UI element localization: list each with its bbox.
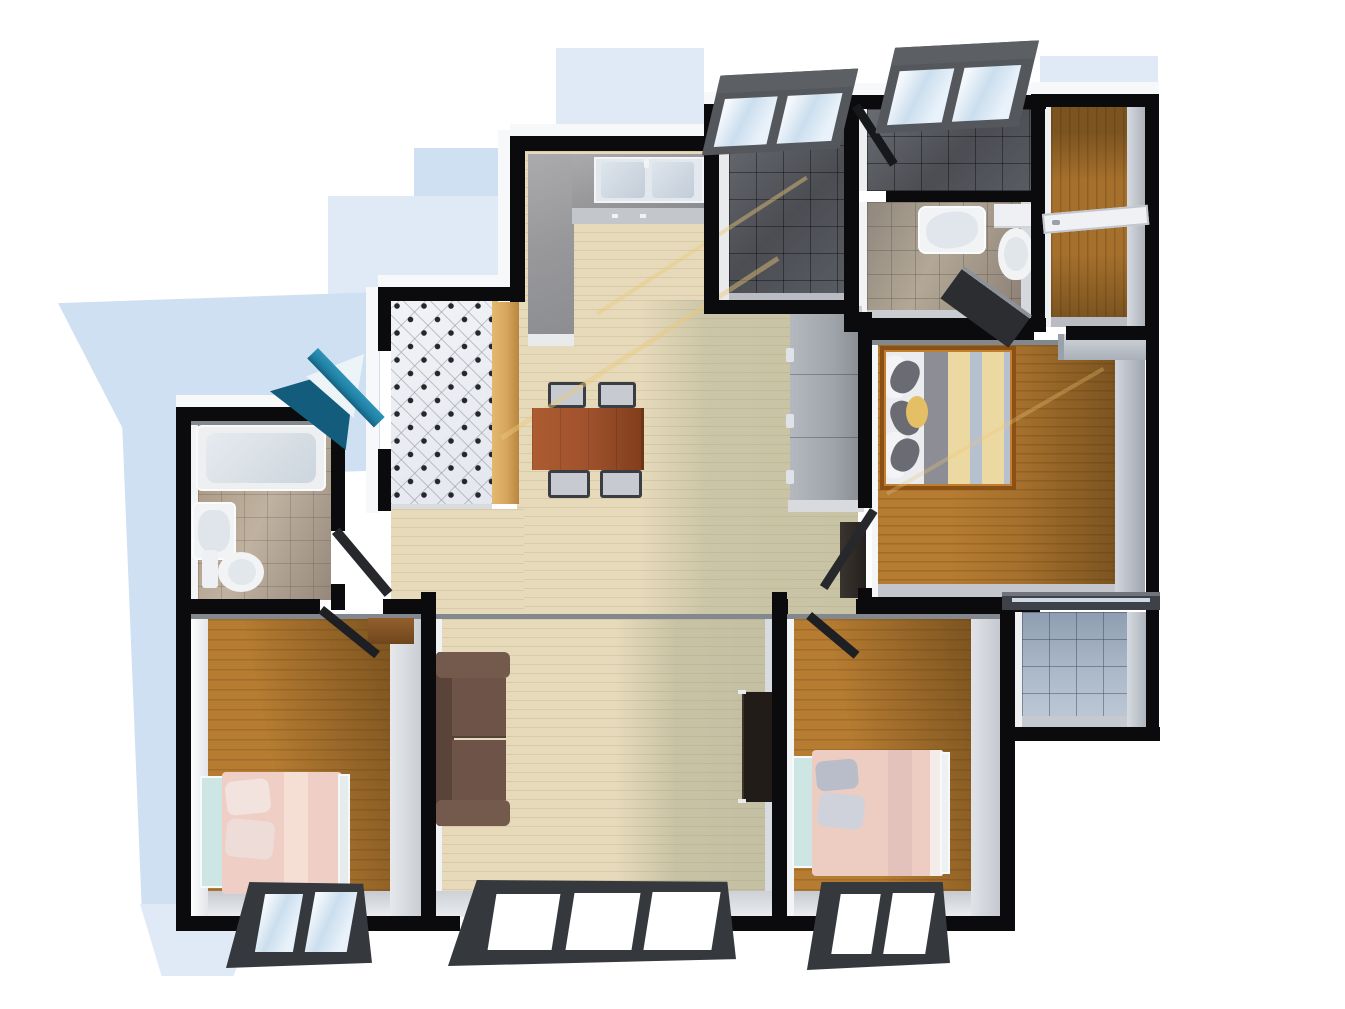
entrance-threshold — [391, 504, 492, 509]
kitchen-cabinet-face — [572, 208, 706, 224]
wall — [331, 584, 345, 610]
wall-face — [390, 619, 422, 917]
bed-headboard — [792, 756, 814, 868]
skylight-pane — [714, 96, 778, 147]
wall — [378, 287, 525, 301]
tv-stand-bracket — [738, 799, 746, 803]
hall-wardrobe-endcap — [788, 500, 864, 512]
bed-pillow-yellow — [906, 396, 928, 428]
window-pane — [488, 894, 561, 950]
skylight-header — [891, 40, 1039, 65]
window-pane — [255, 894, 303, 952]
sofa-cushion — [452, 740, 506, 800]
toilet-tank — [202, 550, 218, 588]
cast-shadow — [122, 420, 180, 908]
bed-pillow — [815, 758, 859, 792]
window-pane — [305, 892, 358, 952]
sofa-armrest — [436, 800, 510, 826]
bed-footboard — [338, 774, 350, 892]
wall-face — [1014, 612, 1022, 728]
wall — [1000, 727, 1160, 741]
single-bed — [792, 750, 958, 876]
bed-duvet-stripe — [284, 772, 308, 894]
skylight-header — [716, 68, 858, 93]
window-pane — [831, 894, 881, 954]
bed-pillow — [816, 792, 865, 831]
bed-headboard — [200, 776, 224, 888]
wall-face — [859, 202, 867, 318]
kitchen-counter-left — [528, 154, 574, 338]
faucet — [644, 158, 649, 168]
floorplan-scene — [0, 0, 1345, 1009]
wall — [772, 592, 787, 931]
balcony — [1014, 612, 1147, 728]
skylight-pane — [777, 93, 843, 144]
entrance-hall — [391, 300, 492, 509]
tv-stand-bracket — [738, 690, 746, 694]
entry-wardrobe — [492, 290, 519, 504]
toilet-seat — [1004, 237, 1028, 271]
wardrobe-handle — [786, 414, 794, 428]
balcony-floor — [1022, 612, 1127, 716]
toilet-seat — [228, 559, 256, 585]
skylight-pane — [952, 65, 1021, 122]
wall — [176, 916, 242, 931]
wall — [1000, 599, 1015, 931]
sofa-cushion — [452, 678, 506, 738]
wall — [1031, 94, 1159, 107]
door-handle — [1052, 220, 1060, 225]
skylight-window — [702, 68, 859, 155]
wall — [510, 136, 525, 302]
bed-pillow — [224, 778, 271, 816]
tv-stand — [742, 692, 772, 802]
wall — [886, 191, 1032, 202]
window-living-room — [448, 880, 736, 966]
wall-face — [1127, 612, 1147, 728]
skylight-pane — [887, 68, 954, 125]
wall — [176, 407, 191, 931]
wall — [378, 449, 391, 511]
dining-chair — [600, 470, 642, 498]
wall — [421, 592, 436, 931]
sink-basin-left — [601, 162, 645, 198]
wall — [704, 300, 859, 314]
cabinet-handle — [612, 214, 618, 218]
sofa-armrest — [436, 652, 510, 678]
window-pane — [883, 893, 935, 954]
dining-chair — [598, 382, 636, 408]
wall — [362, 916, 460, 931]
window-pane — [565, 893, 640, 950]
skylight-window — [875, 40, 1039, 133]
hall-wardrobe — [790, 312, 862, 502]
window-pane — [643, 892, 720, 950]
wall — [1146, 597, 1159, 741]
bathroom1-sink-bowl — [198, 510, 230, 552]
cabinet-handle — [640, 214, 646, 218]
bathtub-basin — [206, 433, 316, 483]
wall-face — [971, 619, 1001, 917]
wall — [844, 95, 859, 332]
toilet-tank — [994, 204, 1036, 228]
balcony-slider-glass — [1012, 598, 1150, 602]
wall — [176, 599, 320, 614]
window-bedroom-right — [804, 882, 950, 970]
faucet — [974, 210, 982, 218]
wardrobe-handle — [786, 470, 794, 484]
entrance-floor — [391, 300, 492, 504]
dining-table — [532, 408, 644, 470]
bed-footboard — [940, 752, 950, 874]
wall — [858, 312, 872, 508]
dining-chair — [548, 470, 590, 498]
window-bedroom-left — [226, 882, 372, 968]
bed-pillow — [224, 818, 275, 860]
wall — [510, 136, 722, 151]
wall — [1146, 326, 1159, 612]
wardrobe-handle — [786, 348, 794, 362]
sofa — [436, 652, 510, 826]
wall-face — [1115, 345, 1145, 598]
master-bed — [880, 346, 1016, 490]
single-bed — [200, 772, 354, 894]
bedroom-left-desk — [368, 618, 414, 644]
kitchen-counter-endcap — [528, 334, 574, 346]
wall — [772, 599, 788, 614]
bed-duvet-stripe — [888, 750, 912, 876]
wall — [378, 287, 391, 351]
sink-basin-right — [652, 162, 694, 198]
